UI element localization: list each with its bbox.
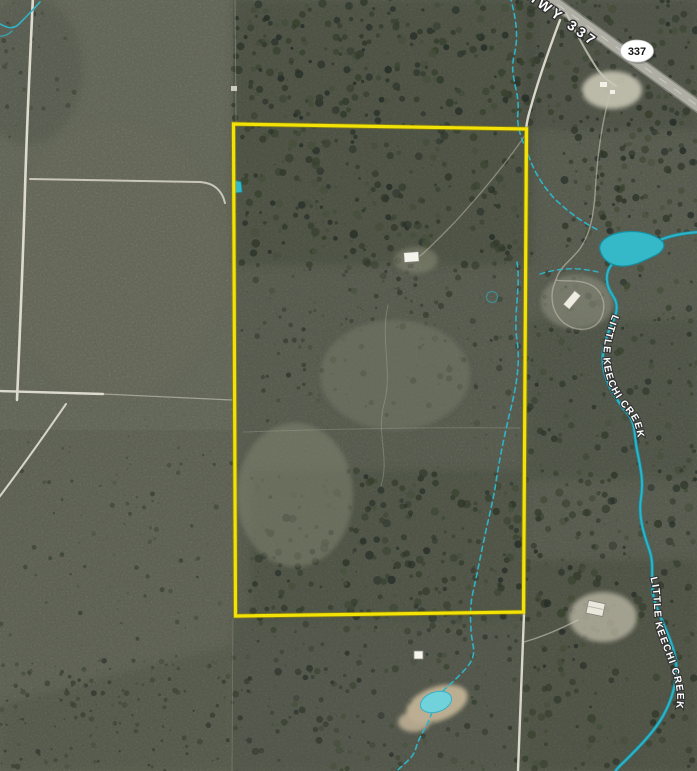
- small-building: [414, 651, 423, 659]
- quarry-structure: [600, 82, 607, 87]
- aerial-map-canvas[interactable]: STATE HWY 337 337 LITTLE KEECHI CREEK LI…: [0, 0, 697, 771]
- meadow-patch: [237, 423, 353, 567]
- highway-shield-number: 337: [628, 46, 646, 58]
- house-clearing: [569, 592, 637, 642]
- tiny-structure: [231, 86, 237, 91]
- map-viewport[interactable]: STATE HWY 337 337 LITTLE KEECHI CREEK LI…: [0, 0, 697, 771]
- meadow-patch: [320, 320, 470, 430]
- quarry-structure: [610, 90, 615, 94]
